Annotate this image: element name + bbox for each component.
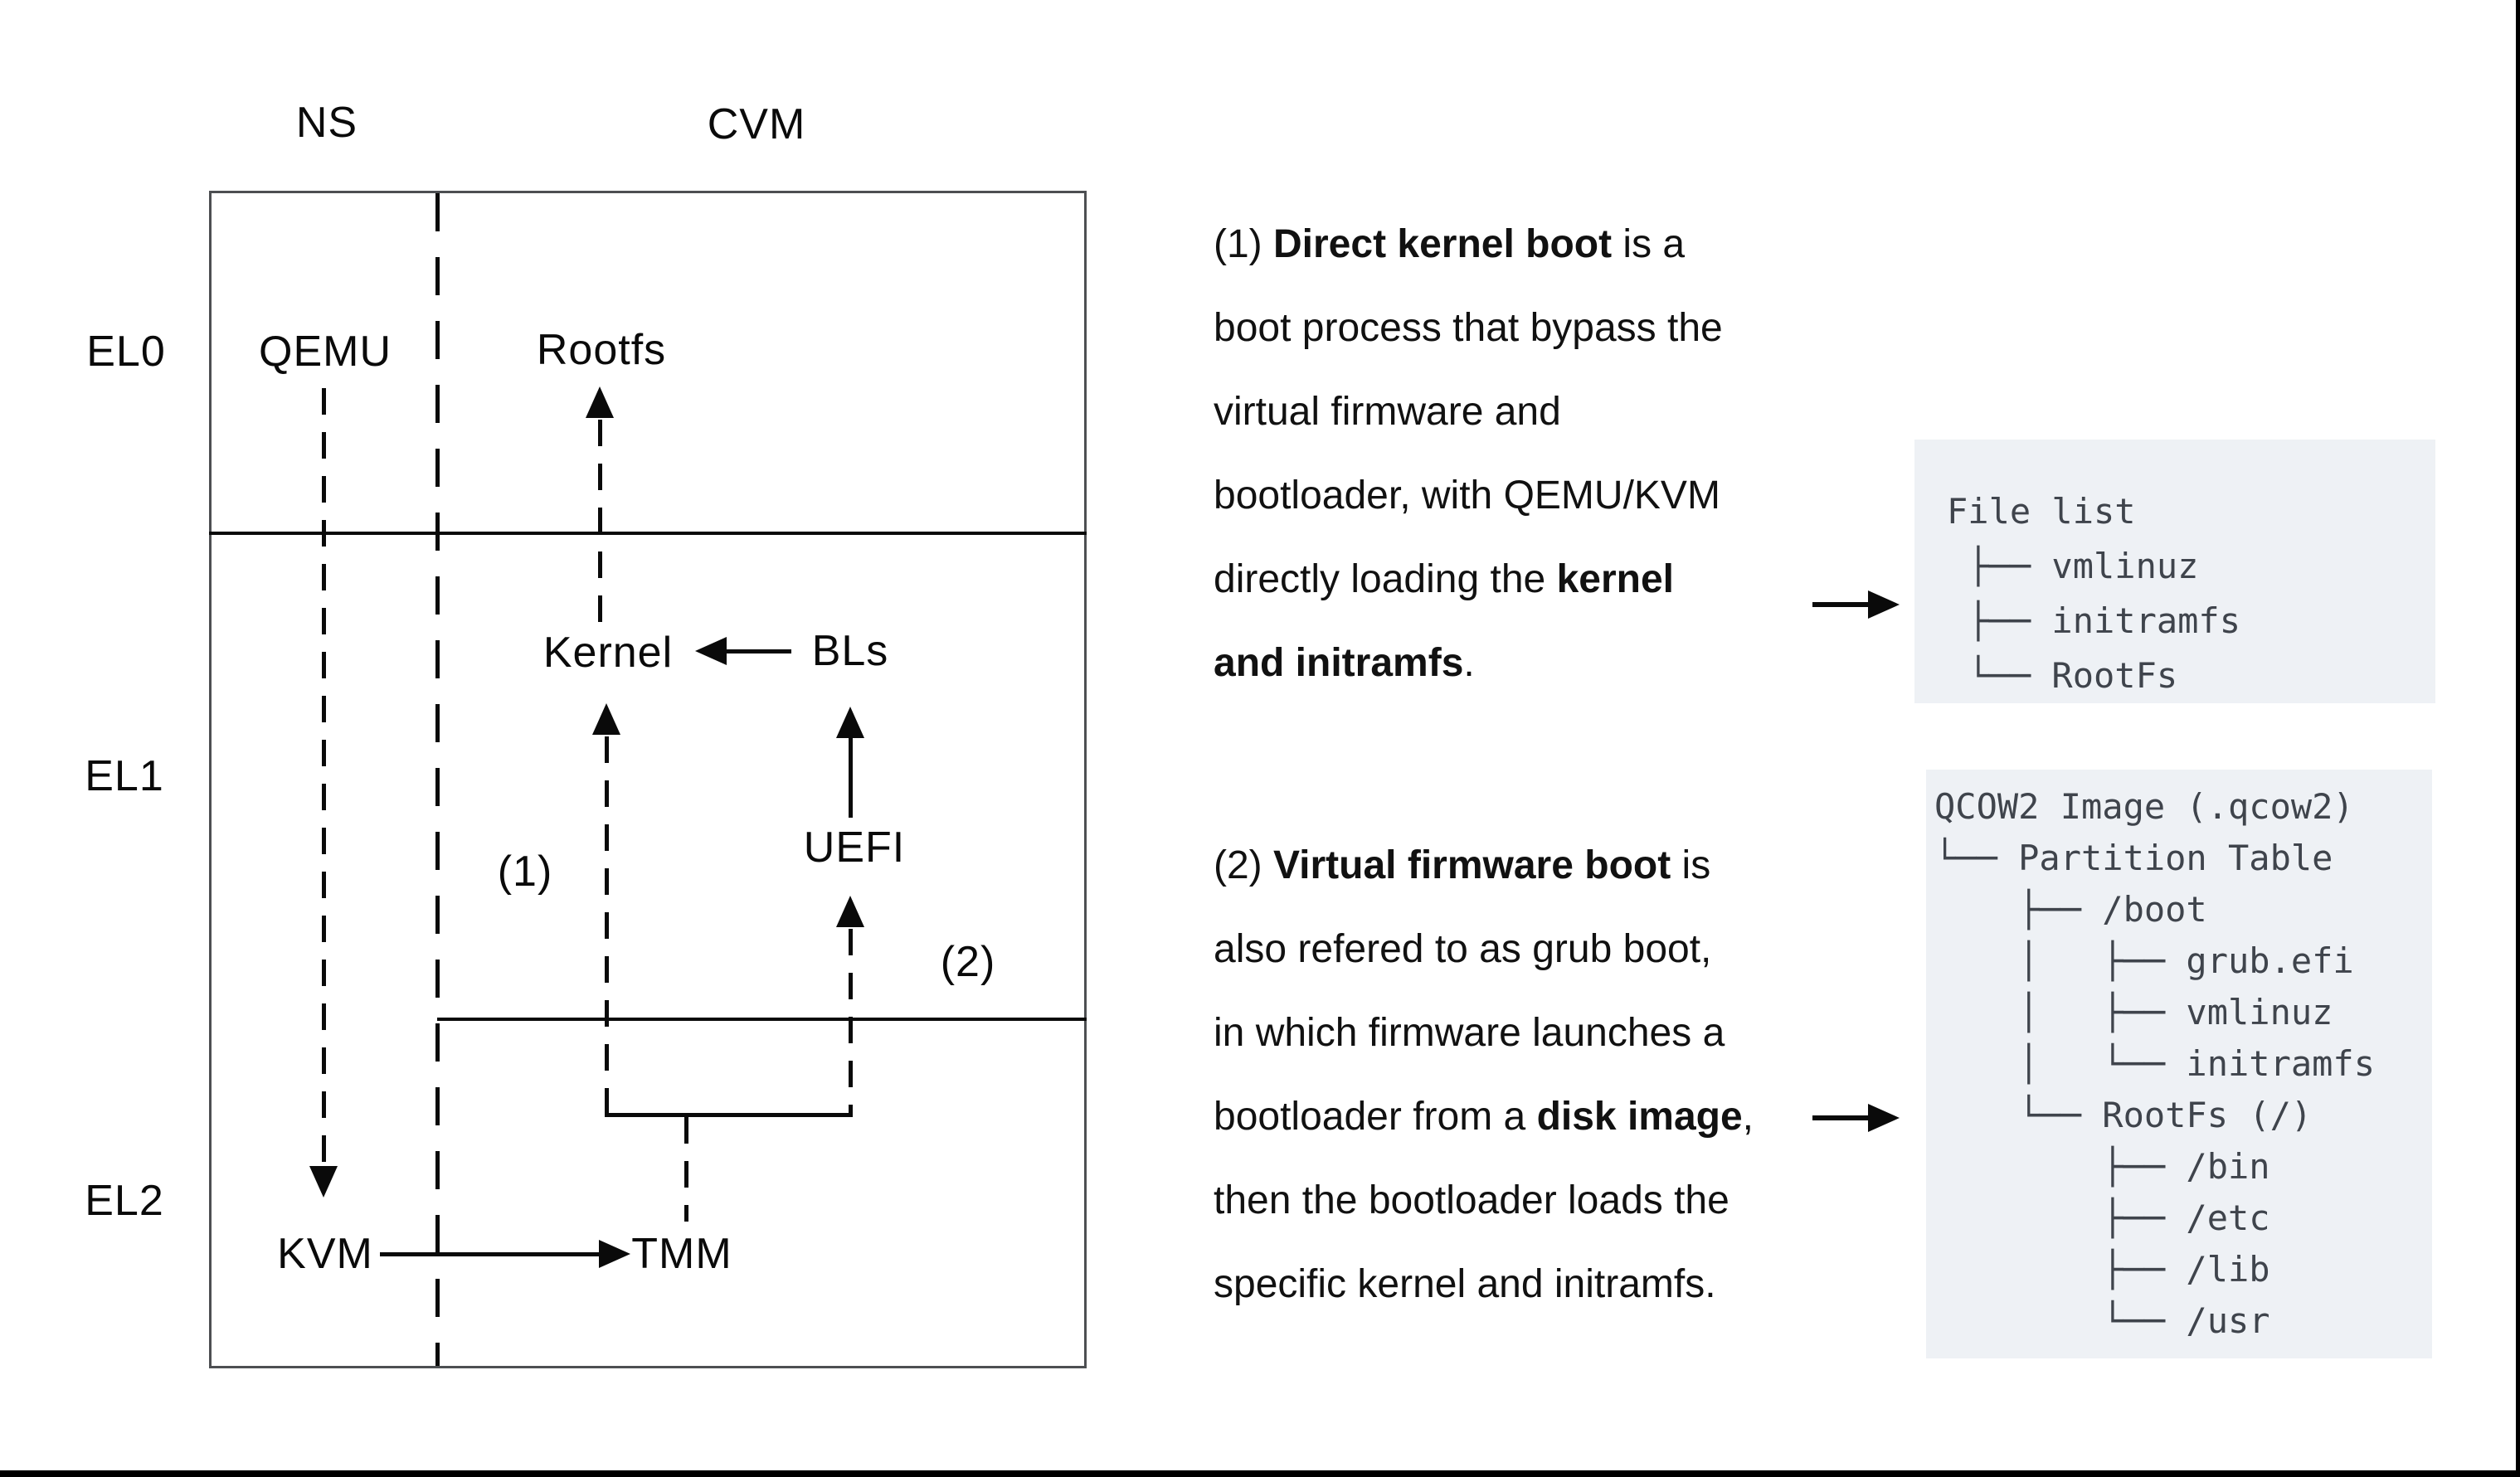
- qemu-to-el2-arrowhead-down-icon: [309, 1166, 338, 1198]
- bls-to-kernel-line: [725, 649, 791, 653]
- column-label-ns: NS: [296, 98, 358, 148]
- file-tree-line: └── RootFs: [1947, 649, 2435, 703]
- para2-to-qcow2-arrowhead-right-icon: [1868, 1104, 1900, 1132]
- column-label-cvm: CVM: [708, 100, 806, 149]
- para2-to-qcow2-line: [1812, 1115, 1871, 1120]
- para1-line: and initramfs.: [1214, 621, 1827, 705]
- para2-line: then the bootloader loads the: [1214, 1159, 1827, 1242]
- node-kernel: Kernel: [543, 628, 673, 678]
- para2-line: bootloader from a disk image,: [1214, 1075, 1827, 1159]
- annotation-direct-kernel-boot: (1) Direct kernel boot is a boot process…: [1214, 202, 1827, 705]
- para1-line: virtual firmware and: [1214, 370, 1827, 454]
- file-tree-line: └── Partition Table: [1934, 833, 2432, 884]
- file-tree-line: ├── /boot: [1934, 884, 2432, 935]
- page-right-border: [2516, 0, 2520, 1477]
- file-tree-line: File list: [1947, 484, 2435, 539]
- node-kvm: KVM: [277, 1229, 373, 1279]
- row-label-el1: EL1: [85, 751, 164, 801]
- para2-line: (2) Virtual firmware boot is: [1214, 824, 1827, 907]
- para1-line: boot process that bypass the: [1214, 286, 1827, 370]
- para2-line: specific kernel and initramfs.: [1214, 1242, 1827, 1326]
- path2-arrowhead-up-icon: [836, 896, 864, 927]
- kvm-to-tmm-line: [380, 1252, 599, 1256]
- para2-line: also refered to as grub boot,: [1214, 907, 1827, 991]
- path1-dashed-line: [605, 736, 609, 1115]
- qcow2-image-callout-box: QCOW2 Image (.qcow2) └── Partition Table…: [1926, 770, 2432, 1358]
- bls-to-kernel-arrowhead-left-icon: [695, 637, 727, 665]
- node-uefi: UEFI: [804, 823, 905, 872]
- file-tree-line: QCOW2 Image (.qcow2): [1934, 781, 2432, 833]
- qemu-to-el2-dashed-line: [322, 388, 326, 1164]
- file-tree-line: └── RootFs (/): [1934, 1090, 2432, 1141]
- kvm-to-tmm-arrowhead-right-icon: [599, 1240, 630, 1268]
- file-tree-line: ├── vmlinuz: [1947, 539, 2435, 594]
- file-tree-line: ├── /lib: [1934, 1244, 2432, 1295]
- file-tree-line: │ └── initramfs: [1934, 1038, 2432, 1090]
- file-tree-line: ├── /bin: [1934, 1141, 2432, 1193]
- para1-line: (1) Direct kernel boot is a: [1214, 202, 1827, 286]
- uefi-to-bls-line: [849, 738, 853, 818]
- node-rootfs: Rootfs: [537, 325, 666, 375]
- path1-label: (1): [498, 847, 553, 896]
- row-label-el2: EL2: [85, 1176, 164, 1226]
- path2-label: (2): [941, 937, 996, 987]
- uefi-to-bls-arrowhead-up-icon: [836, 707, 864, 738]
- annotation-virtual-firmware-boot: (2) Virtual firmware boot is also refere…: [1214, 824, 1827, 1326]
- file-tree-line: │ ├── grub.efi: [1934, 935, 2432, 987]
- ns-cvm-divider-dashed-line: [435, 193, 440, 1366]
- file-tree-line: ├── /etc: [1934, 1193, 2432, 1244]
- para1-to-filelist-line: [1812, 602, 1871, 607]
- kernel-to-rootfs-dashed-line: [598, 420, 602, 625]
- para1-line: directly loading the kernel: [1214, 537, 1827, 621]
- file-tree-line: │ ├── vmlinuz: [1934, 987, 2432, 1038]
- el1-el2-boundary-line: [437, 1018, 1087, 1021]
- row-label-el0: EL0: [86, 327, 166, 377]
- para2-line: in which firmware launches a: [1214, 991, 1827, 1075]
- path1-arrowhead-up-icon: [592, 703, 620, 735]
- bracket-to-tmm-dashed-line: [684, 1117, 688, 1222]
- para1-line: bootloader, with QEMU/KVM: [1214, 454, 1827, 537]
- node-bls: BLs: [812, 626, 889, 676]
- file-tree-line: └── /usr: [1934, 1295, 2432, 1347]
- para1-to-filelist-arrowhead-right-icon: [1868, 590, 1900, 619]
- el0-el1-boundary-line: [209, 532, 1087, 535]
- file-tree-line: ├── initramfs: [1947, 594, 2435, 649]
- kernel-to-rootfs-arrowhead-up-icon: [586, 386, 614, 418]
- file-list-callout-box: File list ├── vmlinuz ├── initramfs └── …: [1914, 440, 2435, 703]
- page: NS CVM EL0 EL1 EL2 QEMU Rootfs Kernel BL…: [0, 0, 2520, 1477]
- boot-paths-bracket-line: [605, 1113, 853, 1117]
- node-qemu: QEMU: [259, 327, 392, 377]
- page-bottom-border: [0, 1470, 2520, 1477]
- node-tmm: TMM: [631, 1229, 732, 1279]
- path2-dashed-line: [849, 929, 853, 1115]
